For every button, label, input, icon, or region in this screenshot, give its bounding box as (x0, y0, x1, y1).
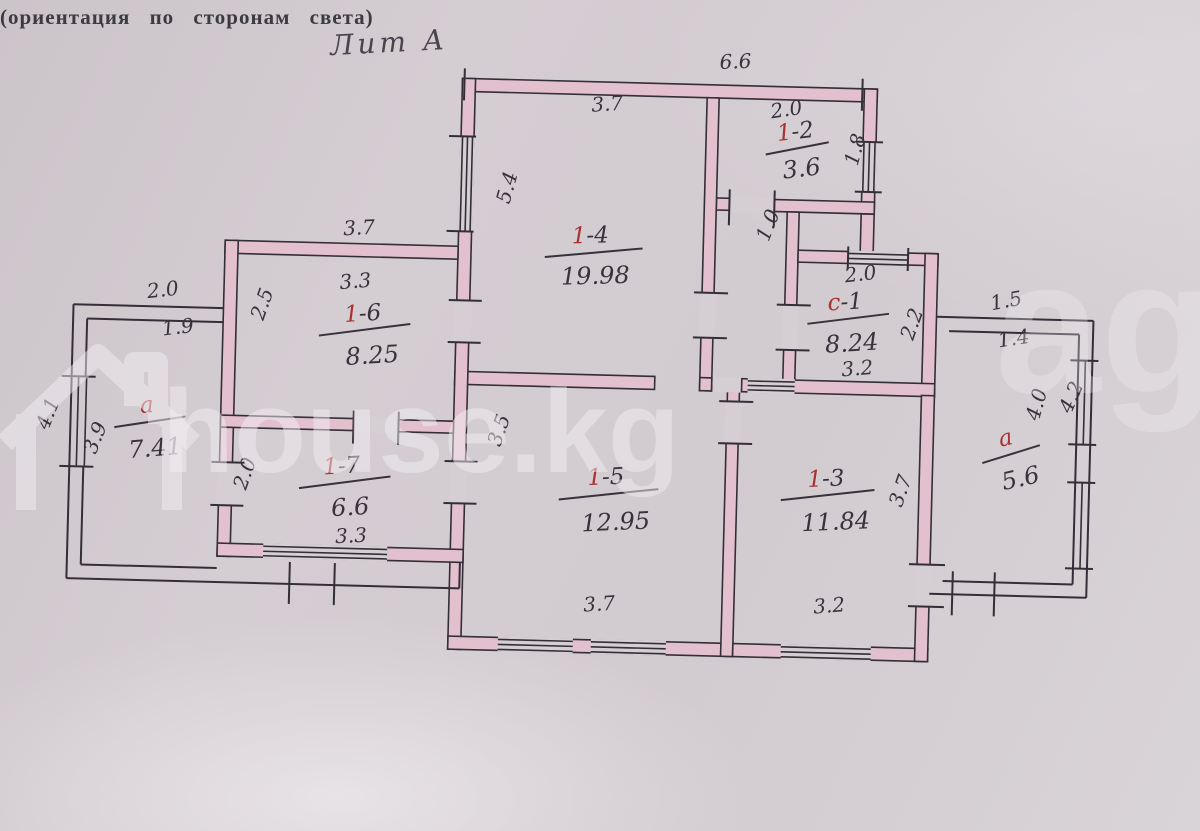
room-label-1-6: 1-6 8.25 (317, 298, 413, 372)
dim-r13-right: 3.7 (884, 471, 917, 509)
svg-text:1-4: 1-4 (571, 222, 609, 249)
svg-text:1-3: 1-3 (807, 465, 845, 493)
room-id: -6 (358, 300, 382, 327)
dim-r14-top: 3.7 (591, 91, 624, 117)
dim-c1-bottom: 3.2 (840, 355, 874, 381)
room-id-red: 1 (343, 301, 359, 328)
room-id: -3 (821, 465, 845, 492)
svg-text:1-6: 1-6 (343, 300, 382, 328)
room-area: 3.6 (781, 152, 822, 184)
room-id-red: 1 (807, 466, 823, 493)
dim-aL-side: 3.9 (78, 418, 112, 457)
dim-r16-outer-top: 3.7 (343, 215, 376, 240)
room-label-c-1: с-1 8.24 (805, 287, 891, 360)
dim-r13-bottom: 3.2 (812, 592, 846, 618)
dim-top-width: 6.6 (719, 49, 752, 74)
watermark-text: house.kg (162, 366, 680, 498)
room-id-red: 1 (571, 223, 586, 249)
room-area: 11.84 (801, 506, 871, 537)
room-label-1-4: 1-4 19.98 (544, 221, 644, 291)
watermark-partial-text: agi (995, 221, 1200, 433)
floor-plan-drawing: 6.6 3.7 5.4 2.0 1.8 1.0 2.0 2.2 3.2 3.7 … (25, 30, 1107, 667)
room-id: -2 (790, 117, 815, 145)
room-area: 5.6 (999, 460, 1042, 496)
liter-label: Лит А (329, 23, 449, 62)
room-area: 8.24 (824, 328, 879, 359)
room-area: 12.95 (581, 506, 651, 537)
floor-plan: 6.6 3.7 5.4 2.0 1.8 1.0 2.0 2.2 3.2 3.7 … (0, 0, 1200, 831)
room-label-1-2: 1-2 3.6 (762, 115, 833, 186)
dim-r14-left: 5.4 (491, 169, 523, 206)
room-label-1-3: 1-3 11.84 (779, 464, 876, 538)
orientation-note: (ориентация по сторонам света) (0, 5, 374, 30)
dim-aL-outer-top: 2.0 (145, 276, 181, 304)
scanned-floor-plan-page: 6.6 3.7 5.4 2.0 1.8 1.0 2.0 2.2 3.2 3.7 … (0, 0, 1200, 831)
svg-text:с-1: с-1 (827, 288, 864, 316)
room-id: -4 (586, 222, 609, 249)
dim-r16-top: 3.3 (339, 268, 373, 294)
dim-r17-bottom: 3.3 (335, 523, 368, 548)
svg-text:1-2: 1-2 (775, 117, 815, 147)
room-id: -1 (840, 288, 864, 315)
dim-aL-top: 1.9 (161, 313, 196, 340)
dim-c1-top: 2.0 (842, 260, 878, 288)
dim-r15-bottom: 3.7 (583, 591, 616, 617)
dim-r16-left: 2.5 (245, 285, 279, 324)
room-area: 19.98 (561, 261, 630, 291)
